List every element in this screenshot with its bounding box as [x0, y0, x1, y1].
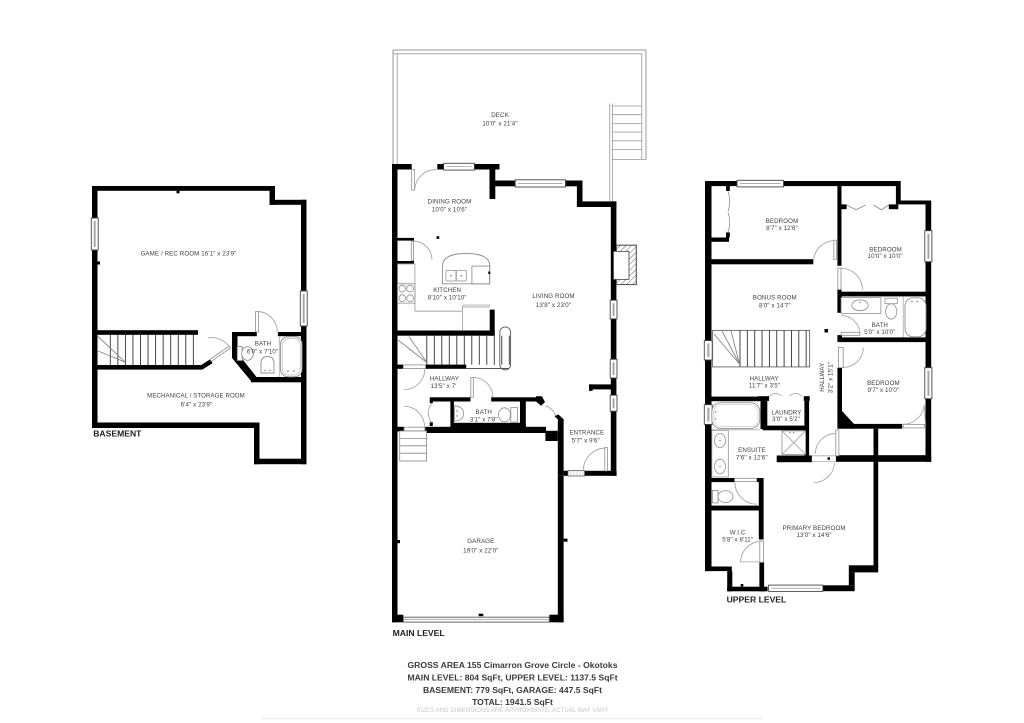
svg-text:3'1" x 7'8": 3'1" x 7'8": [470, 416, 498, 423]
svg-text:GROSS AREA 155 Cimarron Grove: GROSS AREA 155 Cimarron Grove Circle - O…: [408, 660, 618, 670]
svg-text:TOTAL: 1941.5 SqFt: TOTAL: 1941.5 SqFt: [472, 697, 553, 707]
svg-text:BASEMENT: BASEMENT: [93, 429, 142, 439]
svg-text:10'0" x 10'0": 10'0" x 10'0": [868, 253, 903, 260]
svg-text:HALLWAY: HALLWAY: [430, 375, 459, 382]
svg-text:BATH: BATH: [475, 409, 491, 416]
svg-text:5'8" x 8'11": 5'8" x 8'11": [722, 537, 753, 544]
svg-text:MAIN LEVEL: MAIN LEVEL: [393, 628, 445, 638]
svg-text:BEDROOM: BEDROOM: [766, 218, 799, 225]
svg-text:10'0" x 21'4": 10'0" x 21'4": [482, 121, 517, 128]
svg-text:PRIMARY BEDROOM: PRIMARY BEDROOM: [783, 525, 846, 532]
svg-text:11'7" x 3'5": 11'7" x 3'5": [749, 382, 780, 389]
svg-text:DECK: DECK: [491, 112, 509, 119]
svg-text:3'2" x 15'1": 3'2" x 15'1": [828, 362, 835, 393]
svg-text:HALLWAY: HALLWAY: [819, 363, 826, 392]
svg-text:5'0" x 10'0": 5'0" x 10'0": [864, 329, 895, 336]
svg-text:LIVING ROOM: LIVING ROOM: [532, 293, 574, 300]
svg-text:13'0" x 14'6": 13'0" x 14'6": [796, 532, 831, 539]
svg-text:13'8" x 23'0": 13'8" x 23'0": [536, 302, 571, 309]
svg-text:9'7" x 10'0": 9'7" x 10'0": [868, 387, 900, 394]
svg-text:MAIN LEVEL: 804 SqFt, UPPER LE: MAIN LEVEL: 804 SqFt, UPPER LEVEL: 1137.…: [407, 673, 617, 683]
svg-text:DINING ROOM: DINING ROOM: [428, 199, 472, 206]
svg-text:8'10" x 10'10": 8'10" x 10'10": [428, 294, 467, 301]
svg-text:6'0" x 7'10": 6'0" x 7'10": [247, 348, 278, 355]
svg-text:HALLWAY: HALLWAY: [749, 375, 778, 382]
svg-text:7'6" x 12'6": 7'6" x 12'6": [736, 455, 768, 462]
svg-text:6'4" x 23'9": 6'4" x 23'9": [181, 401, 213, 408]
svg-text:BASEMENT: 779 SqFt, GARAGE: 44: BASEMENT: 779 SqFt, GARAGE: 447.5 SqFt: [423, 685, 602, 695]
svg-text:SIZES AND DIMENSIONS ARE APPRO: SIZES AND DIMENSIONS ARE APPROXIMATE, AC…: [416, 708, 608, 714]
svg-text:GARAGE: GARAGE: [467, 538, 494, 545]
svg-text:UPPER LEVEL: UPPER LEVEL: [727, 595, 787, 605]
svg-text:8'0" x 14'7": 8'0" x 14'7": [759, 302, 791, 309]
svg-text:MECHANICAL / STORAGE ROOM: MECHANICAL / STORAGE ROOM: [147, 392, 245, 399]
svg-text:ENTRANCE: ENTRANCE: [569, 430, 604, 437]
svg-text:3'0" x 5'2": 3'0" x 5'2": [772, 416, 800, 423]
svg-text:ENSUITE: ENSUITE: [738, 447, 766, 454]
svg-text:19'0" x 22'0": 19'0" x 22'0": [463, 547, 498, 554]
svg-text:GAME / REC ROOM 16'1" x 23'9": GAME / REC ROOM 16'1" x 23'9": [141, 250, 237, 257]
svg-text:BONUS ROOM: BONUS ROOM: [753, 295, 797, 302]
svg-text:BATH: BATH: [255, 341, 271, 348]
svg-text:5'7" x 9'6": 5'7" x 9'6": [572, 437, 600, 444]
svg-text:10'0" x 10'6": 10'0" x 10'6": [432, 206, 467, 213]
svg-text:KITCHEN: KITCHEN: [433, 287, 461, 294]
svg-text:13'5" x 7': 13'5" x 7': [431, 383, 457, 390]
svg-text:8'7" x 12'6": 8'7" x 12'6": [766, 225, 798, 232]
